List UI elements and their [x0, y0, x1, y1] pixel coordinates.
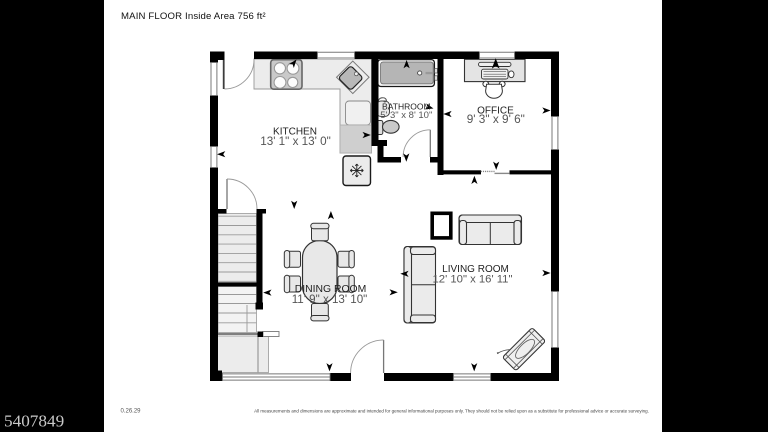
svg-text:All measurements and dimension: All measurements and dimensions are appr… — [254, 409, 649, 414]
svg-text:MAIN FLOOR Inside Area 756 ft²: MAIN FLOOR Inside Area 756 ft² — [121, 11, 266, 22]
svg-text:11' 9" x 13' 10": 11' 9" x 13' 10" — [292, 293, 368, 306]
svg-text:12' 10" x 16' 11": 12' 10" x 16' 11" — [433, 274, 513, 286]
svg-text:9' 3" x 9' 6": 9' 3" x 9' 6" — [467, 112, 525, 126]
svg-text:13' 1" x 13' 0": 13' 1" x 13' 0" — [260, 135, 331, 148]
svg-text:5407849: 5407849 — [4, 411, 64, 430]
svg-text:0.26.29: 0.26.29 — [121, 409, 142, 415]
svg-text:5' 3" x 8' 10": 5' 3" x 8' 10" — [380, 110, 432, 121]
